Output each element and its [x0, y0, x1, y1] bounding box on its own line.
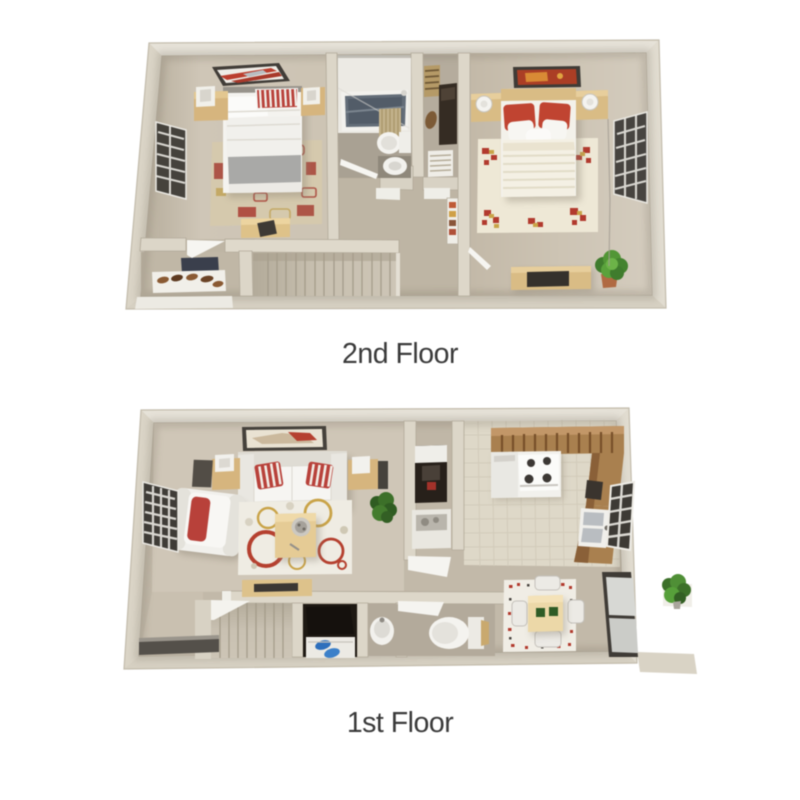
- svg-text:1st Floor: 1st Floor: [347, 707, 454, 739]
- svg-text:2nd Floor: 2nd Floor: [342, 338, 459, 370]
